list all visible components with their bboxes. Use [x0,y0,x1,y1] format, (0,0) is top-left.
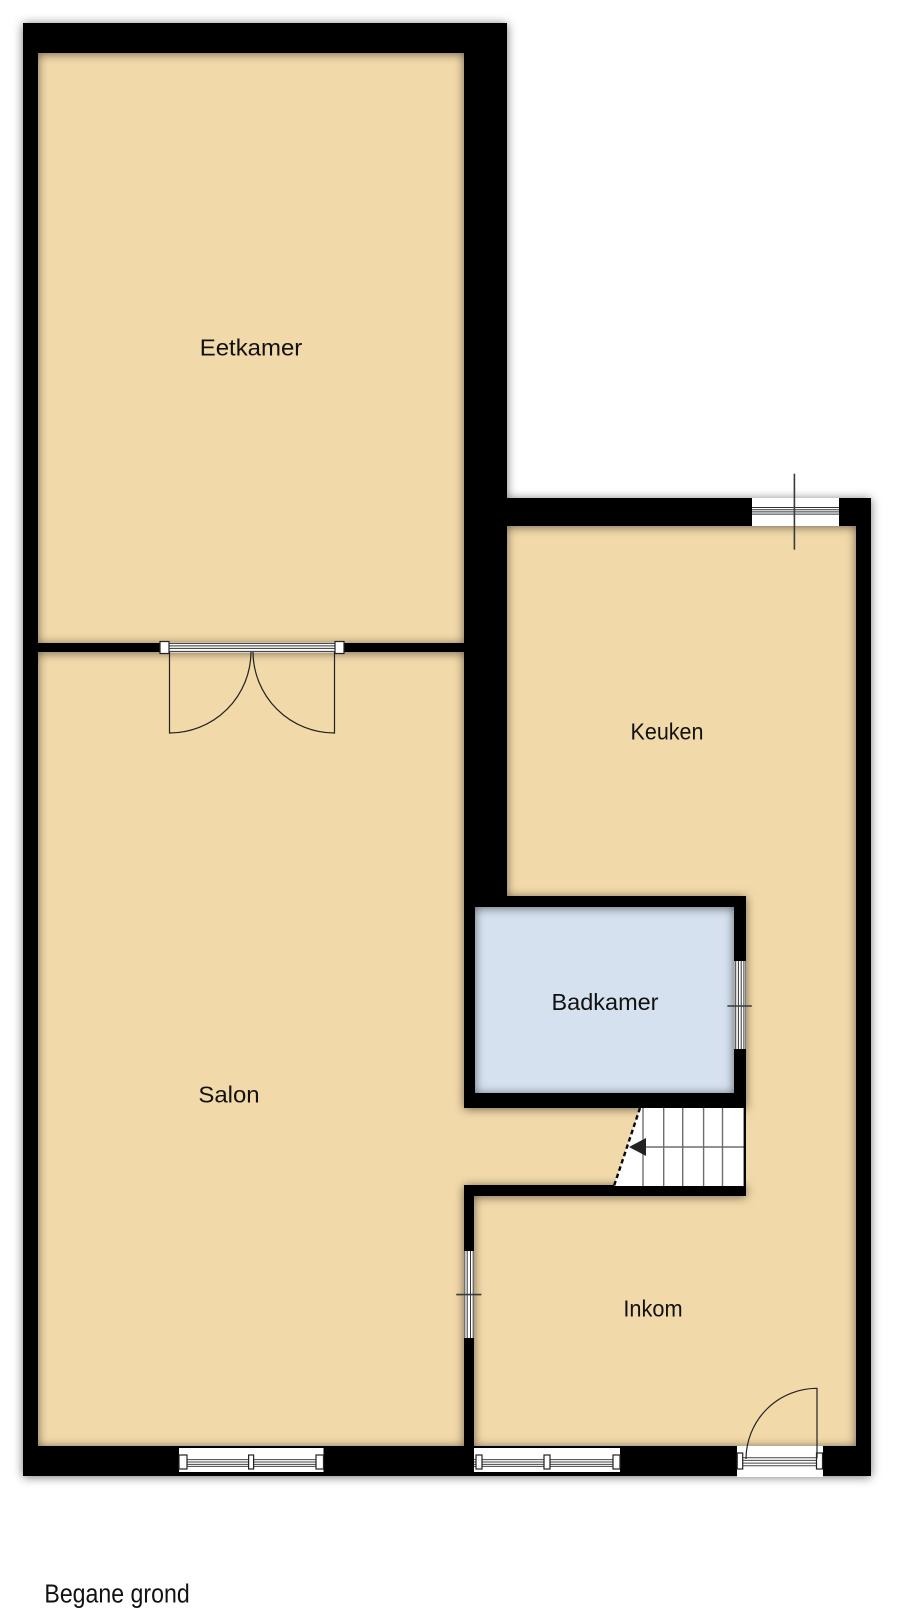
svg-text:Keuken: Keuken [631,719,704,745]
svg-text:Begane grond: Begane grond [44,1581,189,1609]
svg-text:Badkamer: Badkamer [552,989,659,1015]
svg-text:Salon: Salon [198,1082,259,1108]
svg-text:Eetkamer: Eetkamer [200,335,303,361]
svg-text:Inkom: Inkom [623,1296,682,1322]
